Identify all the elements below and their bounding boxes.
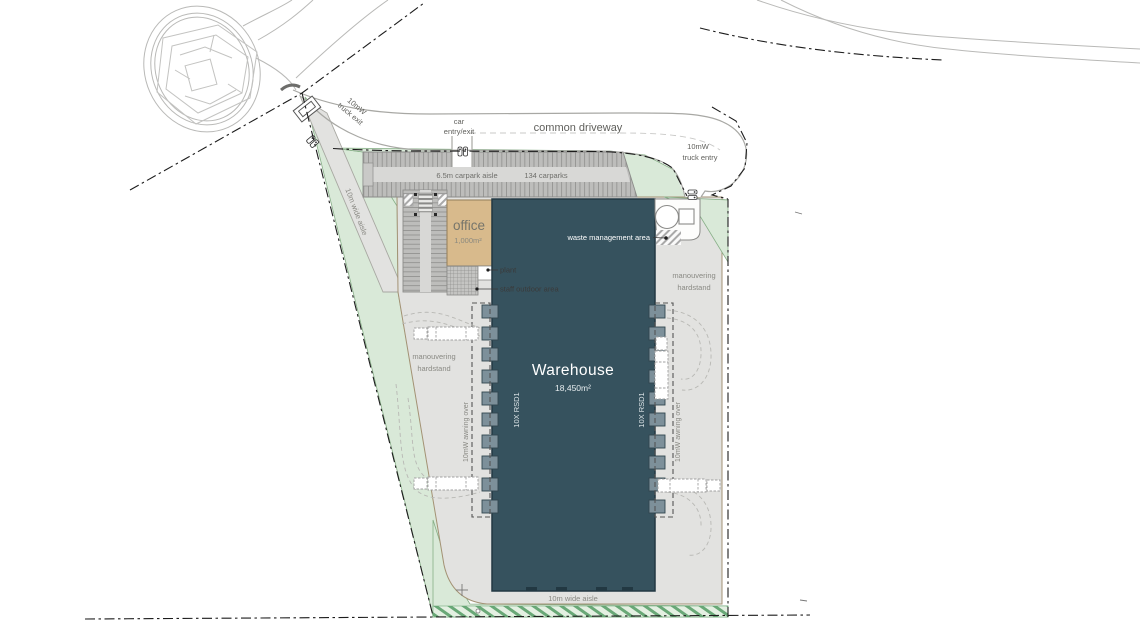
label-car-entry-2: entry/exit [444, 127, 475, 136]
label-plant: plant [500, 266, 517, 275]
plant-area [478, 266, 492, 280]
label-rsd-right: 10X RSD1 [637, 392, 646, 427]
site-plan: common driveway car entry/exit 10mW truc… [0, 0, 1140, 640]
waste-leader-dot [664, 236, 668, 240]
office-building [447, 200, 492, 266]
waste-leader [653, 238, 665, 239]
survey-marker [476, 609, 480, 613]
context-roads [124, 0, 1140, 151]
staff-outdoor-area [447, 266, 478, 295]
truck [658, 479, 720, 492]
label-car-entry-1: car [454, 117, 465, 126]
label-common-driveway: common driveway [534, 122, 623, 134]
driveway-centerline [470, 133, 720, 150]
label-carpark-aisle: 6.5m carpark aisle [436, 171, 497, 180]
label-warehouse: Warehouse [532, 362, 614, 379]
label-office-area: 1,000m² [454, 236, 482, 245]
truck [655, 337, 668, 399]
label-staff-outdoor: staff outdoor area [500, 285, 559, 294]
label-aisle-bottom: 10m wide aisle [548, 594, 598, 603]
label-manouvering-left-2: hardstand [417, 364, 450, 373]
label-awning-right: 10mW awning over [675, 401, 682, 462]
label-rsd-left: 10X RSD1 [512, 392, 521, 427]
carpark-module [403, 190, 447, 292]
label-manouvering-right-1: manouvering [672, 271, 715, 280]
waste-bin-store [679, 209, 694, 224]
label-warehouse-area: 18,450m² [555, 383, 591, 393]
label-truck-entry-1: 10mW [687, 142, 710, 151]
label-manouvering-left-1: manouvering [412, 352, 455, 361]
waste-turntable [656, 206, 679, 229]
label-carpark-count: 134 carparks [524, 171, 568, 180]
label-manouvering-right-2: hardstand [677, 283, 710, 292]
label-waste: waste management area [566, 233, 650, 242]
truck [414, 327, 478, 340]
site-plan-drawing: common driveway car entry/exit 10mW truc… [0, 0, 1140, 640]
staff-leader-dot [475, 287, 478, 290]
label-office: office [453, 218, 485, 233]
zebra-crossing [419, 193, 433, 212]
kerb-arc [281, 85, 300, 90]
truck [414, 477, 478, 490]
label-awning-left: 10mW awning over [463, 401, 470, 462]
label-truck-entry-2: truck entry [682, 153, 717, 162]
plant-leader-dot [486, 268, 489, 271]
carpark-aisle-band [368, 167, 630, 182]
